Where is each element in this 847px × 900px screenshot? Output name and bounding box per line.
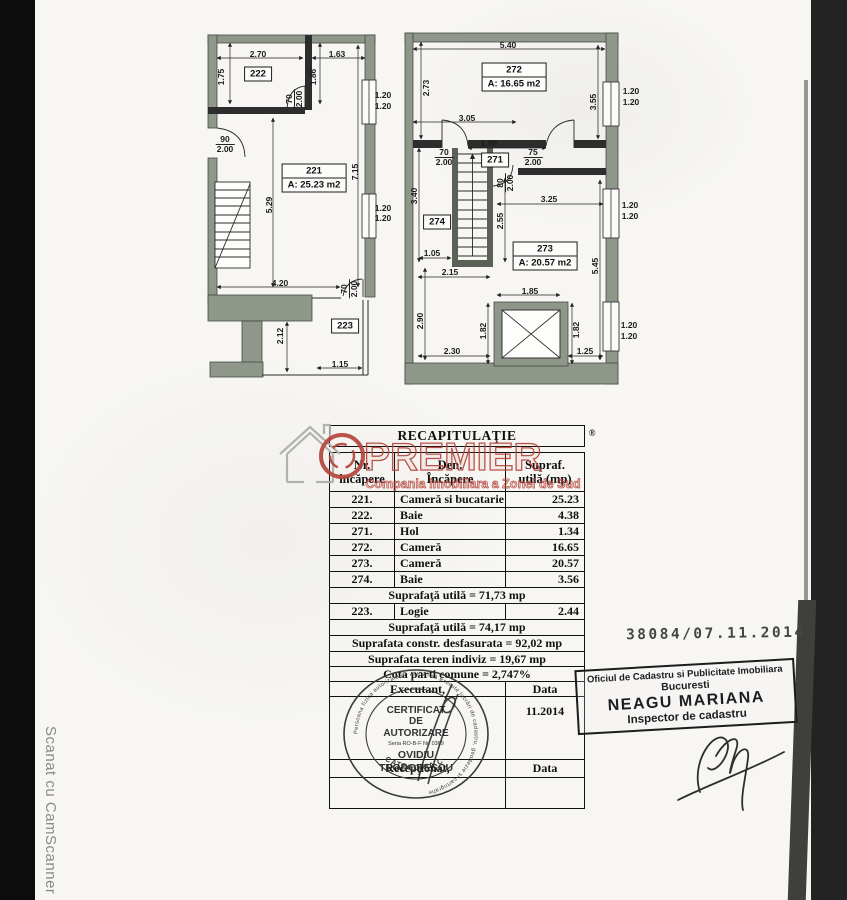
table-row: 274.Baie3.56: [330, 571, 584, 587]
table-row: 272.Cameră16.65: [330, 539, 584, 555]
dim-label: 4.20: [272, 279, 289, 288]
room-label-273: 273A: 20.57 m2: [513, 242, 578, 271]
dim-label: 1.20: [622, 201, 639, 210]
dim-label: 1.86: [309, 69, 318, 86]
dim-label: 1.85: [522, 287, 539, 296]
dim-label: 5.40: [500, 41, 517, 50]
dim-label: 1.20: [375, 91, 392, 100]
summary-cota: Cota parti comune = 2,747%: [330, 666, 584, 681]
room-label-222: 222: [244, 67, 272, 82]
dim-label: 2.12: [276, 328, 285, 345]
dim-label: 1.20: [621, 321, 638, 330]
inspector-signature: [670, 720, 800, 815]
door-dim-label: 802.00: [496, 174, 514, 193]
summary-constr: Suprafata constr. desfasurata = 92,02 mp: [330, 635, 584, 651]
dim-label: 3.40: [410, 188, 419, 205]
receptionat-row: Recepţionat,Data: [330, 759, 584, 777]
dim-label: 1.20: [375, 204, 392, 213]
summary-utila-1: Suprafaţă utilă = 71,73 mp: [330, 587, 584, 603]
dim-label: 1.20: [622, 212, 639, 221]
dim-label: 1.82: [479, 323, 488, 340]
dim-label: 3.55: [589, 94, 598, 111]
registered-mark: ®: [589, 428, 596, 438]
table-row: 273.Cameră20.57: [330, 555, 584, 571]
registry-number: 38084/07.11.2014: [626, 625, 801, 643]
table-row: 271.Hol1.34: [330, 523, 584, 539]
door-dim-label: 752.00: [524, 148, 543, 166]
door-dim-label: 702.00: [435, 148, 454, 166]
dim-label: 1.63: [329, 50, 346, 59]
scanned-document-page: 2.70 1.63 1.75 1.86 702.00 1.20 1.20 902…: [0, 0, 847, 900]
executant-data-row: Executant,Data: [330, 681, 584, 696]
summary-utila-2: Suprafaţă utilă = 74,17 mp: [330, 619, 584, 635]
dim-label: 2.73: [422, 80, 431, 97]
dim-label: 7.15: [351, 164, 360, 181]
table-row-logie: 223.Logie2.44: [330, 603, 584, 619]
dim-label: 1.05: [424, 249, 441, 258]
room-label-274: 274: [423, 215, 451, 230]
table-row: 221.Cameră si bucatarie25.23: [330, 491, 584, 507]
room-label-272: 272A: 16.65 m2: [482, 63, 547, 92]
empty-row: [330, 777, 584, 808]
stamp-date-row: 11.2014: [330, 696, 584, 759]
dim-label: 3.25: [541, 195, 558, 204]
summary-teren: Suprafata teren indiviz = 19,67 mp: [330, 651, 584, 666]
dim-label: 1.80: [481, 139, 498, 148]
dim-label: 2.30: [444, 347, 461, 356]
room-label-271: 271: [481, 153, 509, 168]
dim-label: 5.29: [265, 197, 274, 214]
dim-label: 1.20: [375, 102, 392, 111]
recap-table-title: RECAPITULAŢIE ®: [329, 425, 585, 447]
dim-label: 3.05: [459, 114, 476, 123]
dim-label: 2.55: [496, 213, 505, 230]
dim-label: 1.20: [375, 214, 392, 223]
dim-label: 2.15: [442, 268, 459, 277]
dim-label: 1.20: [623, 98, 640, 107]
table-header-row: Nr.încăpere Den.Încăpere Supraf.utilă (m…: [330, 453, 584, 491]
dim-label: 1.15: [332, 360, 349, 369]
recap-table: RECAPITULAŢIE ® Nr.încăpere Den.Încăpere…: [329, 425, 585, 809]
room-label-221: 221A: 25.23 m2: [282, 164, 347, 193]
door-dim-label: 702.00: [340, 280, 358, 299]
right-plan-stairs: [458, 154, 487, 256]
left-plan-stairs: [215, 182, 250, 268]
door-dim-label: 702.00: [285, 90, 303, 109]
date-value: 11.2014: [506, 697, 584, 759]
table-row: 222.Baie4.38: [330, 507, 584, 523]
door-dim-label: 902.00: [216, 135, 235, 153]
camscanner-footer: Scanat cu CamScanner: [42, 726, 59, 894]
dim-label: 1.20: [621, 332, 638, 341]
dim-label: 1.82: [572, 322, 581, 339]
dim-label: 2.70: [250, 50, 267, 59]
dim-label: 1.75: [217, 69, 226, 86]
dim-label: 1.25: [577, 347, 594, 356]
dim-label: 1.20: [623, 87, 640, 96]
dim-label: 5.45: [591, 258, 600, 275]
room-label-223: 223: [331, 319, 359, 334]
right-plan-shaft: [502, 310, 560, 358]
right-plan-windows: [603, 82, 619, 351]
dim-label: 2.90: [416, 313, 425, 330]
